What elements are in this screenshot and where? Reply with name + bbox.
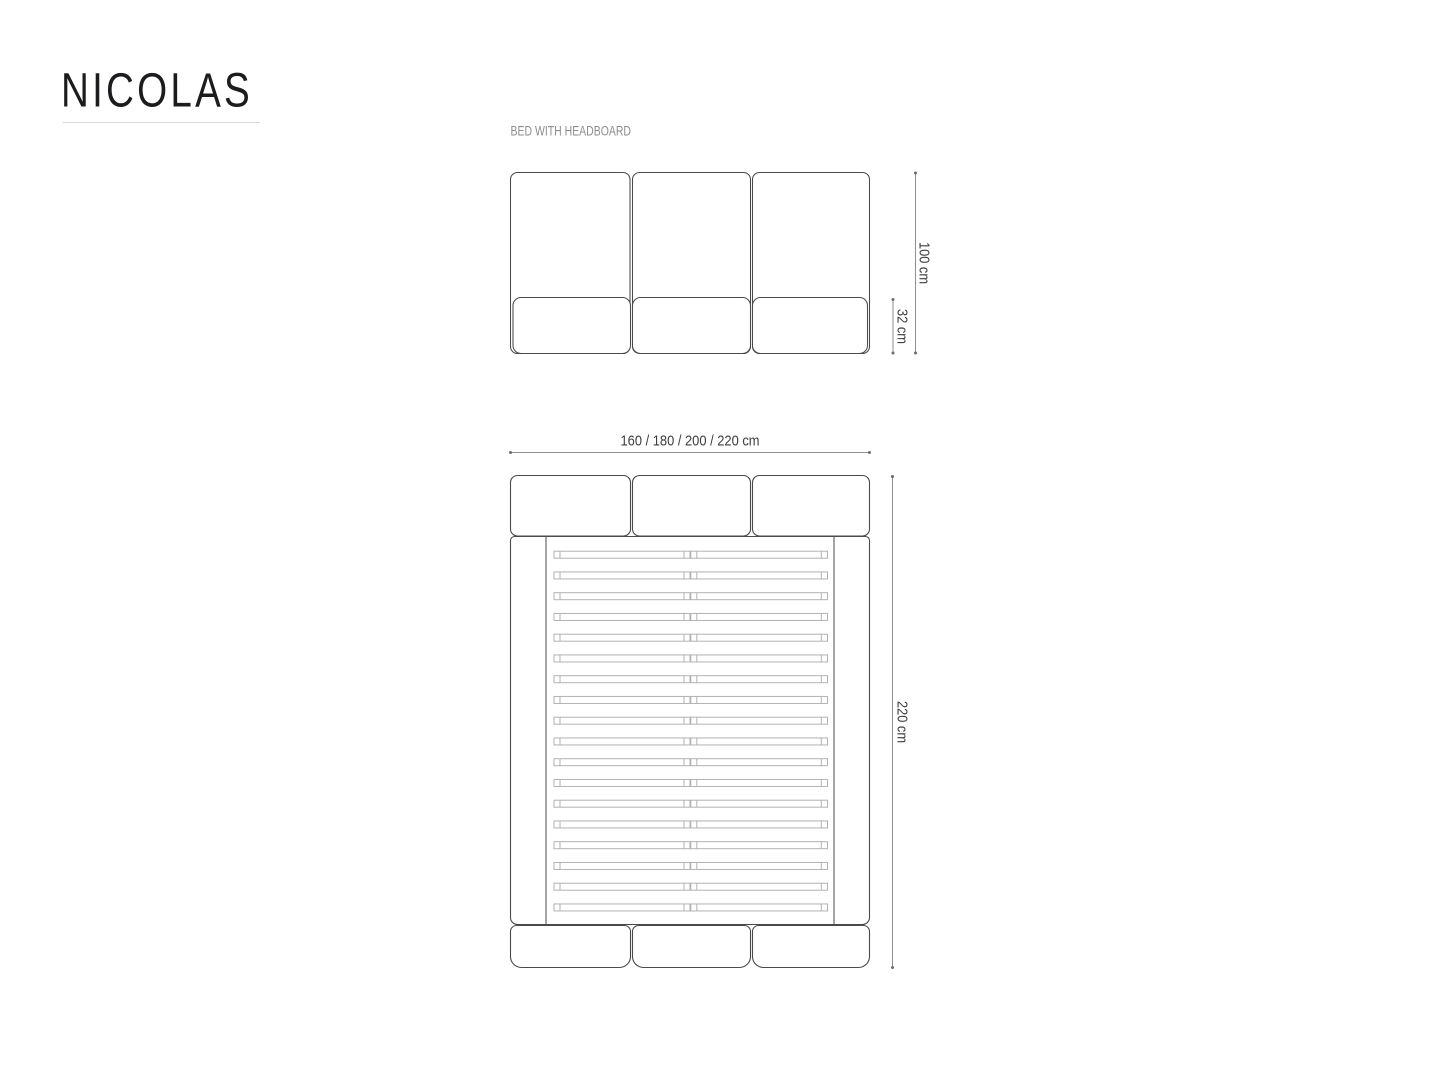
svg-text:BED WITH HEADBOARD: BED WITH HEADBOARD [511,124,632,139]
svg-text:160 / 180 / 200 / 220 cm: 160 / 180 / 200 / 220 cm [621,434,760,450]
svg-text:32 cm: 32 cm [894,309,910,344]
svg-text:220 cm: 220 cm [894,701,910,743]
svg-text:NICOLAS: NICOLAS [61,65,253,118]
svg-text:100 cm: 100 cm [916,242,932,284]
